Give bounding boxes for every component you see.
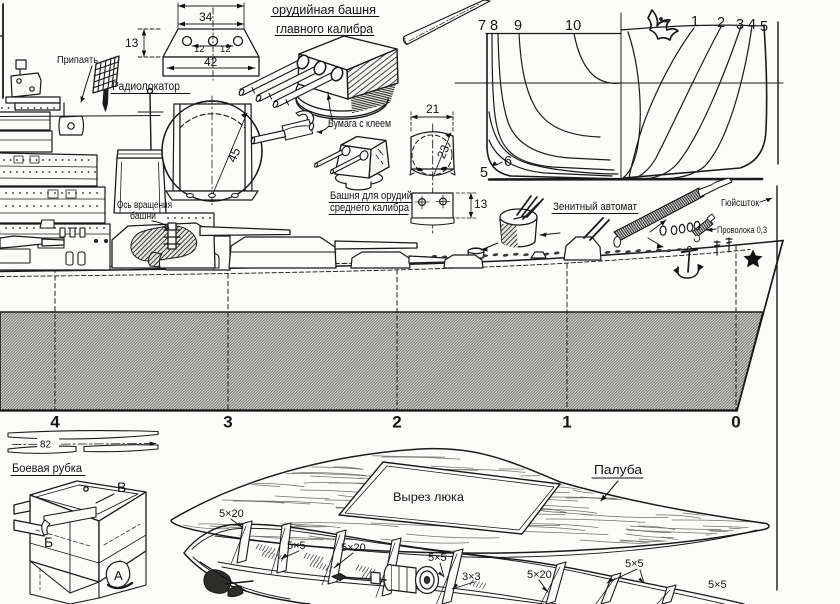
svg-text:5: 5 bbox=[760, 19, 768, 35]
svg-text:3×3: 3×3 bbox=[462, 571, 481, 583]
svg-text:5×20: 5×20 bbox=[341, 542, 366, 554]
svg-text:1: 1 bbox=[691, 14, 699, 30]
svg-text:А: А bbox=[114, 568, 123, 583]
svg-text:Проволока 0,3: Проволока 0,3 bbox=[717, 225, 767, 236]
svg-text:5×20: 5×20 bbox=[219, 508, 244, 520]
svg-text:82: 82 bbox=[40, 440, 52, 451]
svg-text:0: 0 bbox=[731, 413, 740, 432]
svg-text:12: 12 bbox=[220, 44, 231, 55]
svg-text:6: 6 bbox=[504, 154, 512, 170]
svg-text:8: 8 bbox=[490, 18, 498, 34]
svg-text:Вырез люка: Вырез люка bbox=[393, 492, 465, 504]
svg-text:5×5: 5×5 bbox=[708, 579, 727, 591]
svg-text:Башня для орудий: Башня для орудий bbox=[330, 190, 412, 202]
svg-text:Гюйсшток: Гюйсшток bbox=[721, 198, 760, 209]
svg-text:В: В bbox=[117, 479, 126, 495]
svg-text:13: 13 bbox=[474, 197, 488, 211]
svg-text:12: 12 bbox=[194, 44, 205, 55]
svg-text:42: 42 bbox=[204, 55, 218, 69]
svg-text:2: 2 bbox=[717, 15, 725, 31]
svg-text:5×5: 5×5 bbox=[625, 558, 644, 570]
svg-text:10: 10 bbox=[565, 18, 581, 34]
svg-text:5: 5 bbox=[480, 165, 488, 181]
svg-text:3: 3 bbox=[223, 413, 232, 432]
svg-text:Бумага с клеем: Бумага с клеем bbox=[328, 118, 391, 130]
svg-text:4: 4 bbox=[748, 17, 756, 33]
svg-text:2: 2 bbox=[392, 413, 401, 432]
svg-text:башни: башни bbox=[130, 210, 156, 222]
svg-text:1: 1 bbox=[562, 413, 571, 432]
svg-text:7: 7 bbox=[478, 18, 486, 34]
svg-text:5×20: 5×20 bbox=[527, 569, 552, 581]
svg-text:орудийная башня: орудийная башня bbox=[272, 2, 376, 17]
svg-text:34: 34 bbox=[199, 10, 213, 24]
svg-text:Б: Б bbox=[44, 534, 53, 550]
svg-text:9: 9 bbox=[514, 18, 522, 34]
svg-text:21: 21 bbox=[426, 102, 440, 116]
svg-text:4: 4 bbox=[50, 413, 60, 432]
svg-text:среднего калибра: среднего калибра bbox=[330, 202, 410, 214]
svg-text:главного калибра: главного калибра bbox=[276, 21, 374, 36]
svg-text:5×5: 5×5 bbox=[428, 552, 447, 564]
svg-text:13: 13 bbox=[125, 36, 139, 50]
svg-text:Зенитный автомат: Зенитный автомат bbox=[553, 201, 637, 213]
svg-text:Палуба: Палуба bbox=[594, 462, 643, 477]
svg-text:Ось вращения: Ось вращения bbox=[117, 200, 172, 211]
svg-text:Боевая рубка: Боевая рубка bbox=[12, 463, 83, 475]
svg-text:3: 3 bbox=[736, 17, 744, 33]
svg-text:Припаять: Припаять bbox=[57, 55, 98, 66]
svg-text:5×5: 5×5 bbox=[287, 540, 306, 552]
svg-text:Радиолокатор: Радиолокатор bbox=[112, 81, 180, 93]
